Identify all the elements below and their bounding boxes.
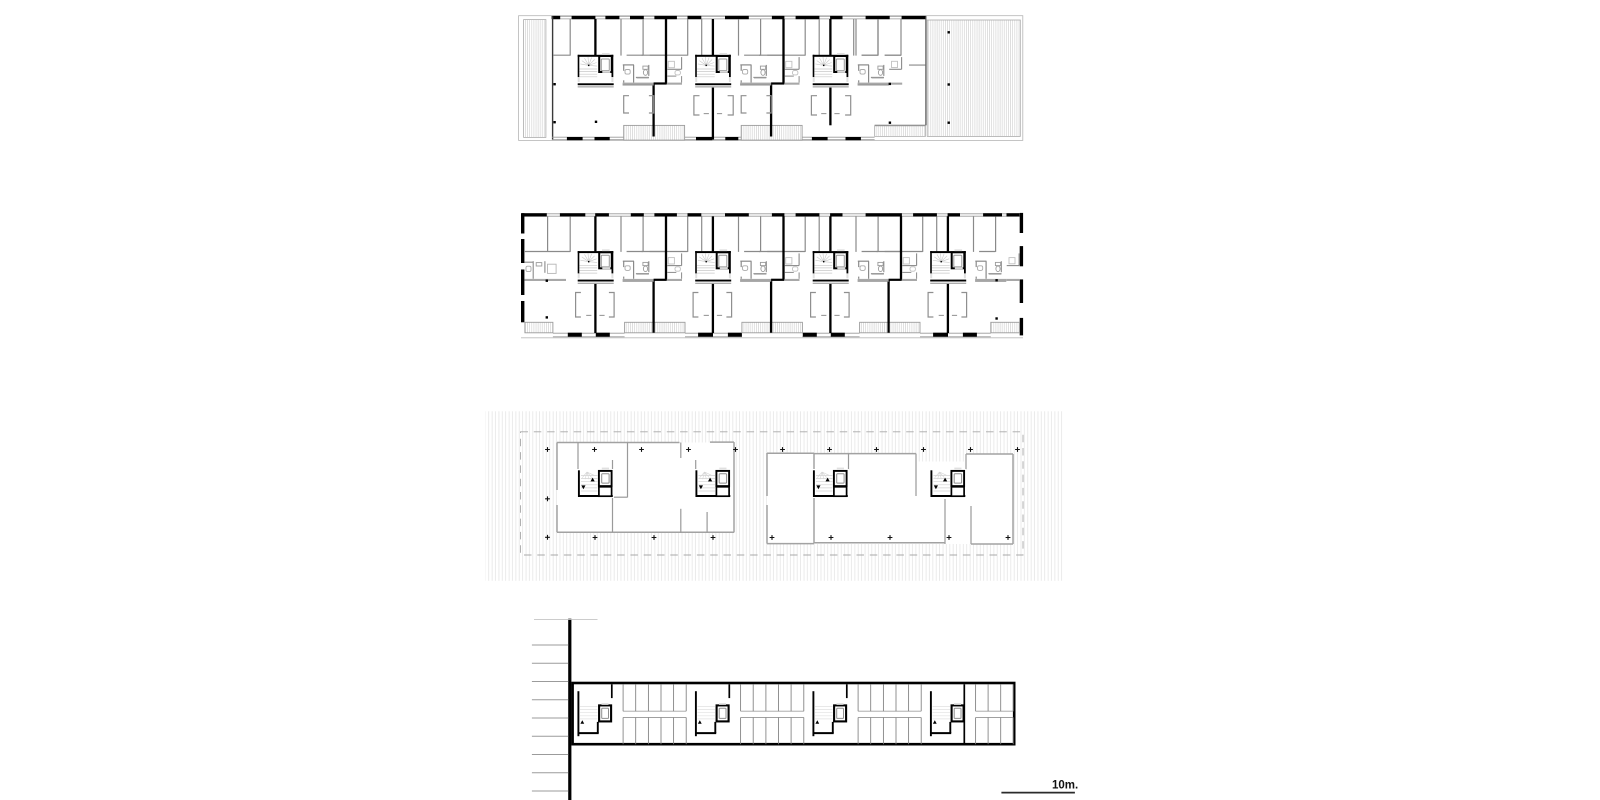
svg-text:10m.: 10m.: [1052, 780, 1078, 792]
